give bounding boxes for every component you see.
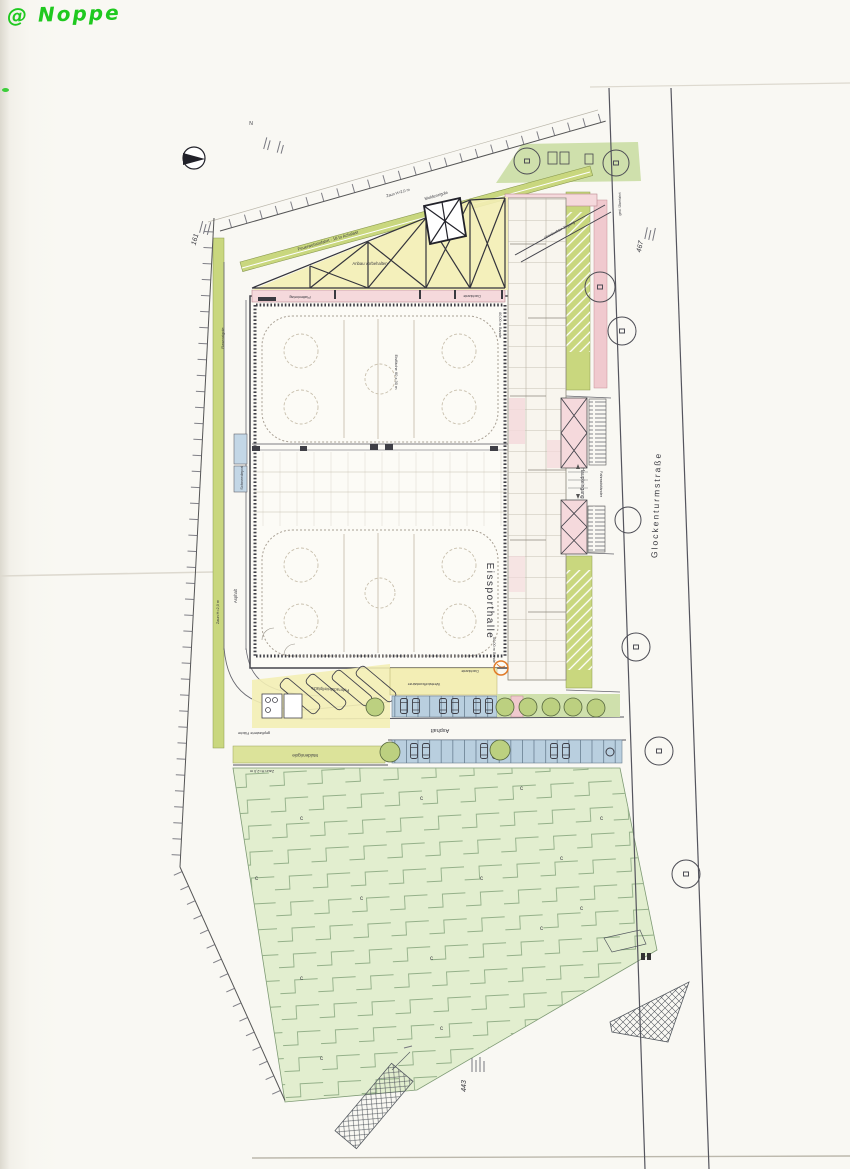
main-entrance-label: Haupteingang [579,467,585,498]
band-note-1: 60,00 m Bande [498,312,502,338]
stair-tower [424,198,466,244]
fence25-label: Zaun H=2,5 m [250,769,274,773]
crossing-label: ged. Überfahrt [618,193,622,216]
asphalt-label-west: Asphalt [233,588,238,603]
svg-text:c: c [540,926,543,932]
building-label: Eissporthalle [484,563,495,640]
swale-strip-west [213,238,224,748]
svg-text:c: c [255,876,258,882]
asphalt-label-road: Asphalt [430,727,449,733]
svg-text:c: c [420,796,423,802]
equipment-boxes [262,694,302,718]
svg-text:c: c [560,856,563,862]
svg-text:c: c [580,906,583,912]
snow-depot-label: Schneedepot [239,465,244,489]
watermark: @ Noppe [7,1,121,28]
band-note-2: 60,00 m Bande [492,637,496,663]
fence20-label-west: Zaun H=2,0 m [216,600,220,624]
svg-text:c: c [440,1026,443,1032]
rink-note: Eisfläche 60 x 30 m [394,355,399,391]
svg-text:c: c [300,816,303,822]
svg-text:c: c [320,1056,323,1062]
svg-text:c: c [480,876,483,882]
parcel-bottom: 443 [461,1080,468,1092]
paved-area-label: gepflasterte Fläche [238,731,270,735]
annex-note: Anbau vorbehalten [352,261,388,266]
swale-label-bottom: Muldenrigole [292,753,318,758]
fence20-label-top: Zaun H=2,0 m [386,188,410,199]
bike-racks-label: Fahrradständer [599,471,603,498]
svg-text:c: c [430,956,433,962]
scanned-site-plan: @ Noppe [0,0,850,1169]
lawn-swale-label: Rasenrigole [220,327,225,349]
green-scan-mark [2,88,9,92]
svg-text:c: c [600,816,603,822]
roof-edge-label-2: Dachkante [461,669,478,673]
annex-rooms [508,198,566,680]
parking-rows [366,694,622,763]
swale-label-top: Muldenrigole [424,190,449,202]
container-note: Wertstoffcontainer [407,682,440,687]
site-plan-svg: Glockenturmstraße Eissporthalle Eisfläch… [0,0,850,1169]
roof-edge-label-1: Dachkante [463,294,480,298]
svg-text:c: c [360,896,363,902]
north-arrow-icon [183,147,205,169]
parcel-right: 467 [636,239,646,253]
svg-text:c: c [300,976,303,982]
paving-label: Plattenbelag [289,295,310,299]
svg-text:c: c [520,786,523,792]
north-letter: N [249,121,253,127]
parcel-left: 161 [191,233,201,246]
street-label: Glockenturmstraße [649,452,663,559]
